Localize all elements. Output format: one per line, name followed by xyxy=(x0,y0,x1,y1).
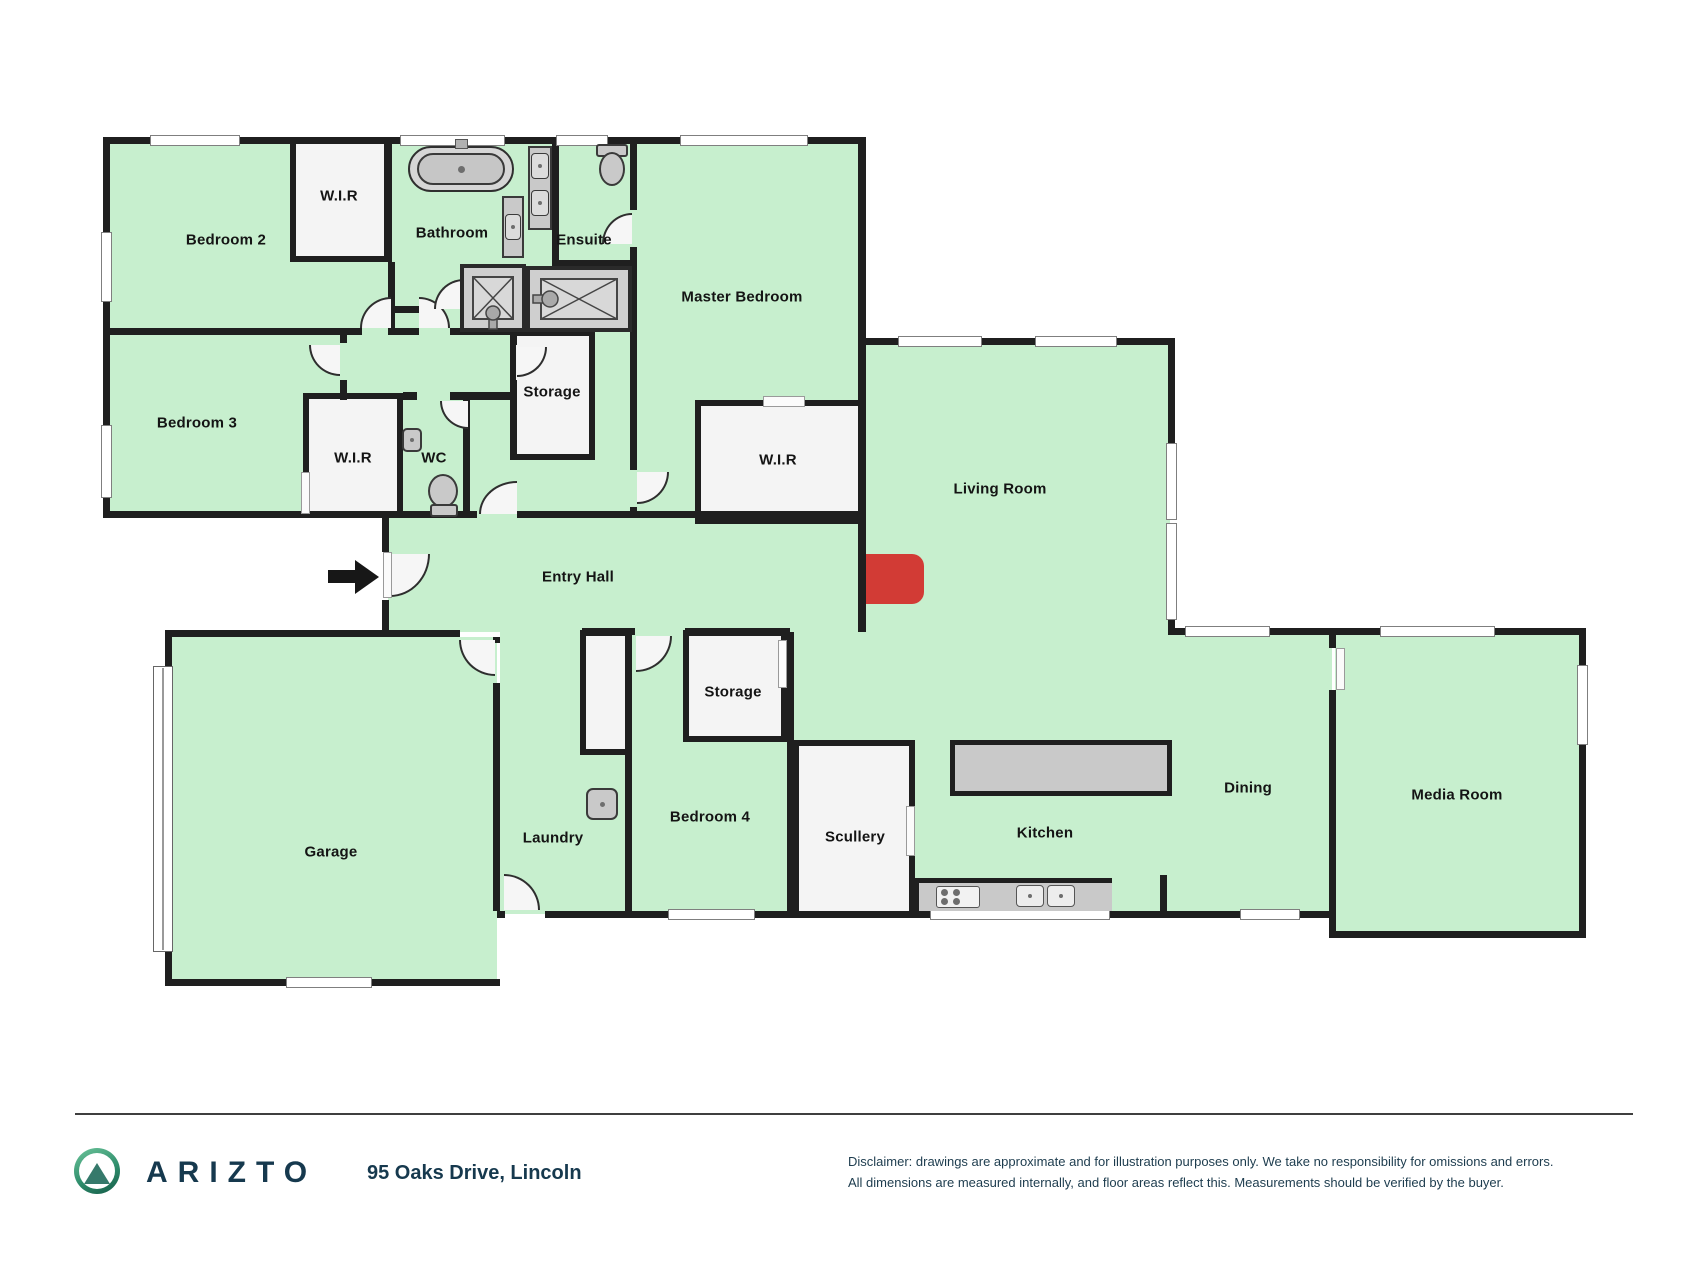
window xyxy=(1577,665,1588,745)
wall xyxy=(858,338,898,345)
wall xyxy=(1172,628,1185,635)
laundry-sink-drain xyxy=(600,802,605,807)
wall xyxy=(103,137,150,144)
floor-plan-page: Bedroom 2 W.I.R Bathroom Ensuite Master … xyxy=(0,0,1707,1280)
wall xyxy=(1332,931,1586,938)
wall xyxy=(505,137,556,144)
wc-toilet-bowl xyxy=(428,474,458,508)
wall xyxy=(165,979,286,986)
room-label-master-bedroom: Master Bedroom xyxy=(681,289,802,306)
wall xyxy=(755,911,930,918)
window xyxy=(1166,443,1177,520)
wall xyxy=(552,260,637,268)
footer-divider xyxy=(75,1113,1633,1115)
wall xyxy=(545,911,668,918)
bathroom-sink-drain xyxy=(511,225,515,229)
burner xyxy=(953,889,960,896)
ensuite-toilet-bowl xyxy=(599,152,625,186)
window xyxy=(400,135,505,146)
window xyxy=(1185,626,1270,637)
wall xyxy=(103,328,362,335)
wall xyxy=(608,137,680,144)
vanity-sink-2-drain xyxy=(538,201,542,205)
room-label-bathroom: Bathroom xyxy=(416,225,488,242)
window xyxy=(898,336,982,347)
room-label-wir-bedroom-2: W.I.R xyxy=(320,188,358,205)
window xyxy=(101,232,112,302)
room-label-wc: WC xyxy=(421,450,446,467)
room-label-storage-lower: Storage xyxy=(704,684,761,701)
wall xyxy=(1160,875,1167,918)
wall xyxy=(1332,628,1380,635)
window xyxy=(150,135,240,146)
wall xyxy=(630,140,637,210)
wall xyxy=(1110,911,1240,918)
room-label-storage-upper: Storage xyxy=(523,384,580,401)
area-garage xyxy=(168,637,497,982)
disclaimer-text: Disclaimer: drawings are approximate and… xyxy=(848,1152,1553,1193)
door-leaf-storage-lower xyxy=(778,640,787,688)
wall xyxy=(340,380,347,400)
room-label-laundry: Laundry xyxy=(523,830,584,847)
window xyxy=(680,135,808,146)
kitchen-sink-right-drain xyxy=(1059,894,1063,898)
room-label-media-room: Media Room xyxy=(1411,787,1502,804)
wall xyxy=(103,302,110,425)
wall xyxy=(630,247,637,470)
room-label-scullery: Scullery xyxy=(825,829,885,846)
wall xyxy=(382,518,389,552)
wc-toilet-tank xyxy=(430,504,458,517)
wall xyxy=(1495,628,1586,635)
wall xyxy=(392,328,419,335)
wall xyxy=(982,338,1035,345)
burner xyxy=(941,898,948,905)
door-leaf-scullery xyxy=(906,806,915,856)
wall xyxy=(1329,690,1336,938)
room-label-entry-hall: Entry Hall xyxy=(542,569,614,586)
burner xyxy=(953,898,960,905)
disclaimer-line-1: Disclaimer: drawings are approximate and… xyxy=(848,1152,1553,1173)
wall xyxy=(385,140,392,262)
door-leaf-front-entry xyxy=(383,552,392,598)
wall xyxy=(1117,338,1175,345)
wall xyxy=(787,632,794,918)
wall xyxy=(450,392,510,400)
arizto-logo-mountain-icon xyxy=(84,1163,110,1184)
room-label-wir-bedroom-3: W.I.R xyxy=(334,450,372,467)
room-label-garage: Garage xyxy=(305,844,358,861)
burner xyxy=(941,889,948,896)
brand-name: ARIZTO xyxy=(146,1156,317,1190)
wall xyxy=(497,911,505,918)
wall xyxy=(103,511,477,518)
wall xyxy=(165,630,460,637)
wall xyxy=(510,380,517,460)
wall xyxy=(1168,338,1175,443)
window xyxy=(1166,523,1177,620)
room-label-kitchen: Kitchen xyxy=(1017,825,1073,842)
wall xyxy=(1329,628,1336,648)
wall xyxy=(858,137,866,632)
wall xyxy=(1579,745,1586,938)
fireplace xyxy=(866,554,924,604)
property-address: 95 Oaks Drive, Lincoln xyxy=(367,1162,582,1185)
wall xyxy=(1270,628,1332,635)
wall xyxy=(685,628,790,635)
vanity-sink-1-drain xyxy=(538,164,542,168)
room-label-bedroom-4: Bedroom 4 xyxy=(670,809,750,826)
window xyxy=(286,977,372,988)
wall xyxy=(403,392,417,400)
door-leaf-media-room xyxy=(1336,648,1345,690)
wc-sink-drain xyxy=(410,438,414,442)
area-entry-hall xyxy=(388,518,858,632)
kitchen-sink-left-drain xyxy=(1028,894,1032,898)
room-label-living-room: Living Room xyxy=(953,481,1046,498)
window xyxy=(668,909,755,920)
area-media-room xyxy=(1335,634,1583,934)
wall xyxy=(552,140,559,268)
garage-door-line xyxy=(162,668,164,950)
room-label-dining: Dining xyxy=(1224,780,1272,797)
window xyxy=(1035,336,1117,347)
wall xyxy=(372,979,500,986)
wall xyxy=(517,511,866,518)
window xyxy=(101,425,112,498)
wall xyxy=(240,137,400,144)
wall xyxy=(510,332,517,345)
wall xyxy=(103,137,110,232)
door-leaf-wir-master xyxy=(763,396,805,407)
entry-arrow-icon xyxy=(328,570,355,583)
room-label-bedroom-3: Bedroom 3 xyxy=(157,415,237,432)
door-leaf-wir-bedroom-3 xyxy=(301,472,310,514)
wall xyxy=(625,632,632,918)
bathtub-faucet xyxy=(455,139,468,149)
room-label-wir-master: W.I.R xyxy=(759,452,797,469)
wall xyxy=(340,335,347,343)
wall xyxy=(382,600,389,632)
wall xyxy=(1300,911,1332,918)
kitchen-island xyxy=(950,740,1172,796)
disclaimer-line-2: All dimensions are measured internally, … xyxy=(848,1173,1553,1194)
window xyxy=(1240,909,1300,920)
room-label-ensuite: Ensuite xyxy=(556,232,612,249)
bathtub-drain xyxy=(458,166,465,173)
room-label-bedroom-2: Bedroom 2 xyxy=(186,232,266,249)
wall xyxy=(1579,628,1586,665)
entry-arrow-head-icon xyxy=(355,560,379,594)
wall xyxy=(165,637,172,668)
wall xyxy=(493,683,500,911)
window xyxy=(1380,626,1495,637)
